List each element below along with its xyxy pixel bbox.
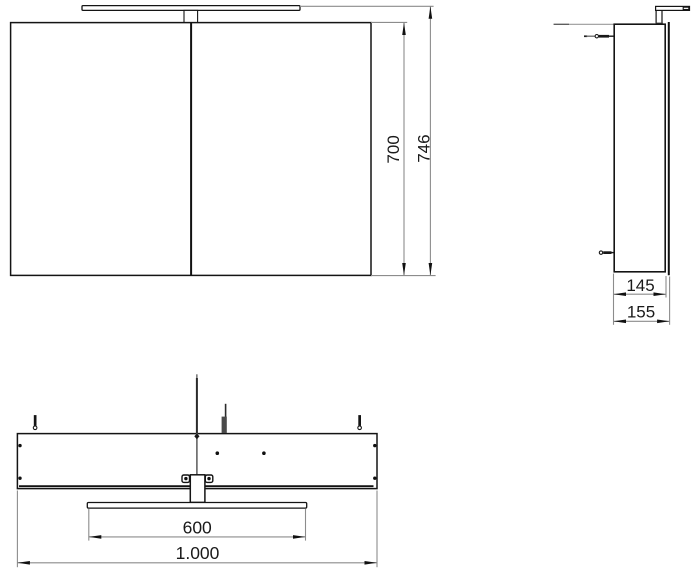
svg-text:600: 600 — [183, 517, 212, 537]
svg-text:700: 700 — [384, 135, 403, 163]
svg-text:155: 155 — [627, 303, 655, 322]
svg-text:1.000: 1.000 — [176, 543, 220, 563]
svg-text:145: 145 — [626, 276, 654, 295]
svg-text:746: 746 — [415, 134, 434, 162]
